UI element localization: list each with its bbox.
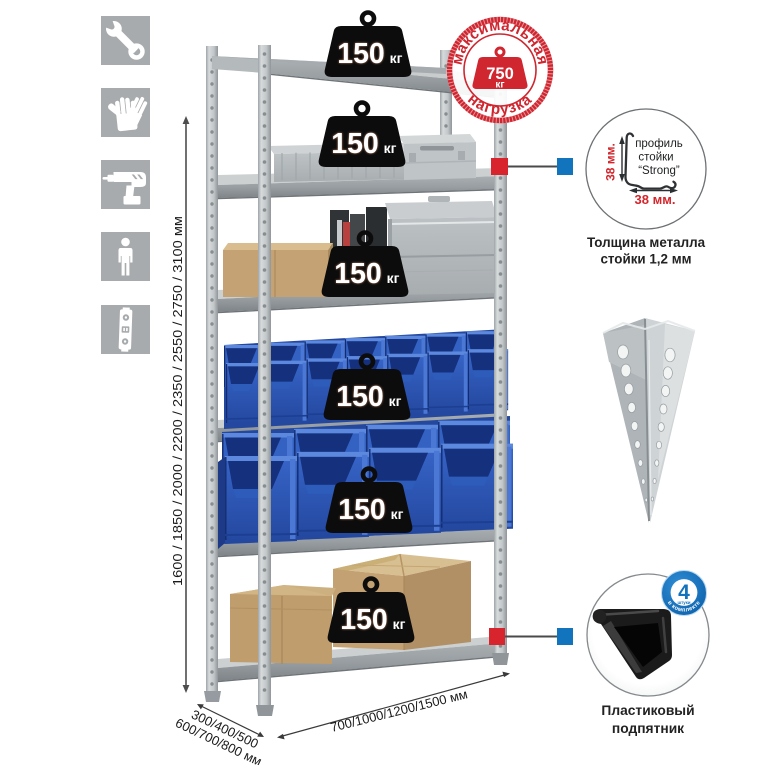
svg-text:профиль: профиль xyxy=(635,138,683,150)
svg-text:150: 150 xyxy=(331,128,379,160)
svg-text:38 мм.: 38 мм. xyxy=(604,143,618,181)
svg-text:кг: кг xyxy=(393,616,406,632)
svg-text:кг: кг xyxy=(495,80,504,91)
svg-text:150: 150 xyxy=(336,381,384,413)
svg-text:стойки 1,2 мм: стойки 1,2 мм xyxy=(600,252,691,267)
svg-text:150: 150 xyxy=(338,494,386,526)
svg-text:подпятник: подпятник xyxy=(612,721,684,736)
svg-text:38 мм.: 38 мм. xyxy=(635,192,676,207)
svg-text:150: 150 xyxy=(337,38,385,70)
svg-text:кг: кг xyxy=(387,270,400,286)
svg-text:штуки: штуки xyxy=(678,600,691,605)
svg-text:Пластиковый: Пластиковый xyxy=(601,703,694,718)
svg-text:150: 150 xyxy=(340,604,388,636)
svg-text:кг: кг xyxy=(390,50,403,66)
svg-text:кг: кг xyxy=(384,140,397,156)
svg-text:1600 / 1850 / 2000 / 2200 / 23: 1600 / 1850 / 2000 / 2200 / 2350 / 2550 … xyxy=(170,216,185,586)
svg-text:стойки: стойки xyxy=(638,152,673,164)
svg-text:кг: кг xyxy=(391,506,404,522)
svg-text:Толщина металла: Толщина металла xyxy=(587,235,706,250)
svg-text:“Strong”: “Strong” xyxy=(638,165,680,177)
svg-text:кг: кг xyxy=(389,393,402,409)
svg-text:150: 150 xyxy=(334,258,382,290)
